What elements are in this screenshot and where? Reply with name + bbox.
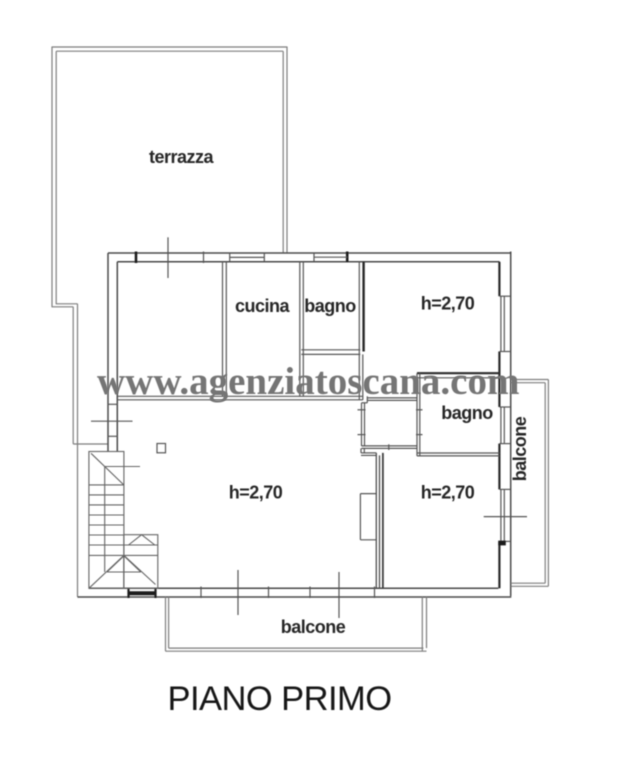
svg-text:cucina: cucina: [235, 296, 291, 316]
svg-text:www.agenziatoscana.com: www.agenziatoscana.com: [97, 360, 519, 403]
svg-text:bagno: bagno: [441, 403, 493, 423]
svg-text:h=2,70: h=2,70: [421, 483, 475, 503]
svg-text:terrazza: terrazza: [149, 147, 215, 167]
svg-text:h=2,70: h=2,70: [229, 483, 283, 503]
svg-text:PIANO PRIMO: PIANO PRIMO: [168, 680, 392, 718]
svg-text:bagno: bagno: [304, 296, 356, 316]
svg-text:balcone: balcone: [281, 617, 346, 637]
svg-text:balcone: balcone: [510, 416, 530, 481]
svg-text:h=2,70: h=2,70: [421, 294, 475, 314]
